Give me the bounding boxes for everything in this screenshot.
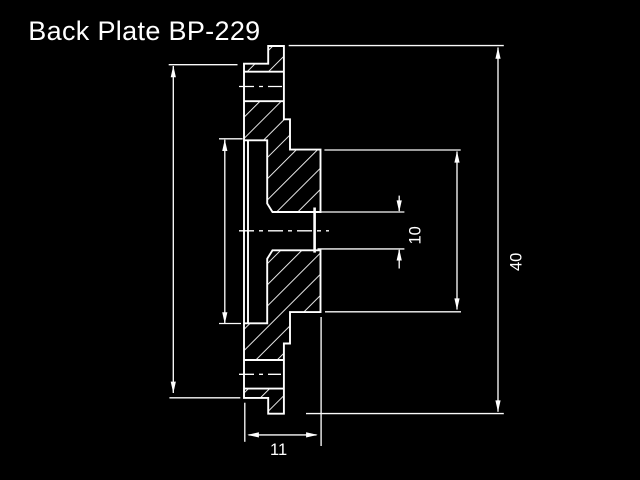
- svg-text:40: 40: [507, 253, 525, 271]
- svg-text:11: 11: [270, 441, 287, 459]
- svg-text:Back Plate BP-229: Back Plate BP-229: [28, 16, 260, 46]
- svg-text:10: 10: [406, 226, 424, 244]
